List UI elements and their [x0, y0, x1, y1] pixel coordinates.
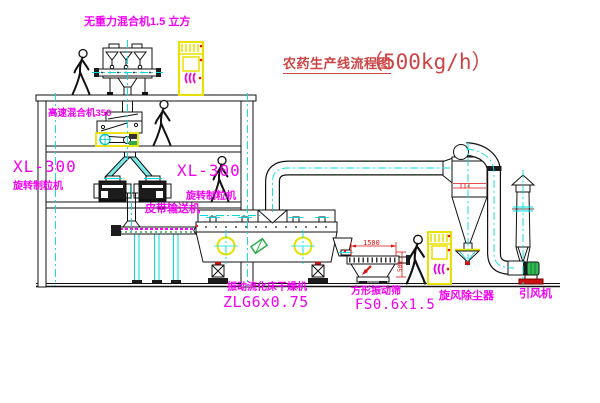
fan-label: 引风机 — [519, 289, 552, 300]
dryer-name-label: 振动流化床干燥机 — [227, 283, 307, 293]
induced-draft-fan — [508, 261, 543, 284]
person-roof — [73, 50, 90, 95]
sieve-height-dimension: 500 — [397, 261, 404, 272]
belt-conveyor-label: 皮带输送机 — [145, 204, 200, 215]
dryer-spring-supports — [208, 262, 328, 283]
high-speed-mixer-label: 高速混合机350 — [48, 109, 111, 119]
granulator-left — [94, 176, 131, 202]
granulator-left-name-label: 旋转制粒机 — [13, 182, 63, 192]
diagram-canvas: 无重力混合机1.5 立方 农药生产线流程图 （500kg/h） 高速混合机350… — [0, 0, 600, 403]
cyclone — [452, 157, 487, 265]
sieve-model-label: FS0.6x1.5 — [355, 298, 435, 312]
belt-conveyor — [111, 225, 200, 284]
granulator-mid-model-label: XL-300 — [177, 163, 241, 179]
sieve-name-label: 方形振动筛 — [351, 287, 401, 297]
granulator-mid-name-label: 旋转制粒机 — [186, 192, 236, 202]
granulator-right — [134, 176, 171, 202]
person-ground — [407, 235, 425, 283]
control-cabinet-right — [428, 232, 451, 284]
control-cabinet-top — [179, 42, 203, 95]
gravity-mixer-label: 无重力混合机1.5 立方 — [84, 17, 190, 28]
cyclone-label: 旋风除尘器 — [439, 291, 494, 302]
diagram-title-capacity: （500kg/h） — [362, 46, 493, 76]
granulator-left-model-label: XL-300 — [13, 159, 77, 175]
y-chute — [105, 152, 153, 177]
dryer-model-label: ZLG6x0.75 — [223, 295, 309, 310]
person-floor2 — [154, 101, 171, 146]
sieve-width-dimension: 1500 — [363, 239, 380, 247]
